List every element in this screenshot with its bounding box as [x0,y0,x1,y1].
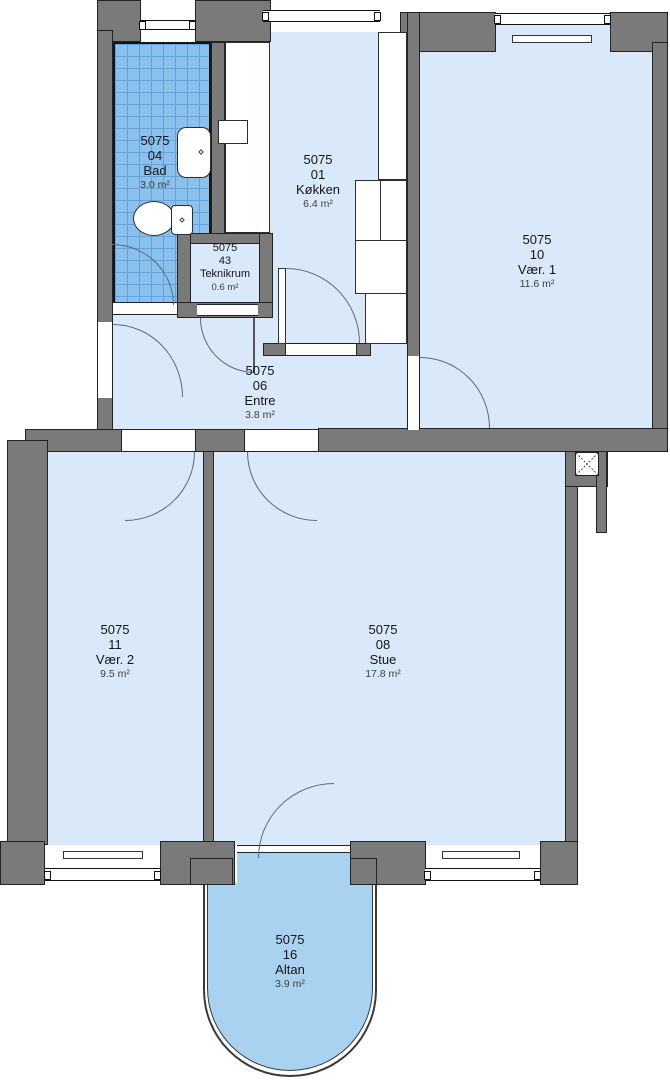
wall-right-lower [565,451,578,885]
room-label-stue: 507508 Stue17.8 m² [323,622,443,682]
window-vaer2 [45,868,160,881]
room-label-vaer1: 507510 Vær. 111.6 m² [477,232,597,292]
toilet-bowl-symbol [133,201,175,236]
kitchen-counter-right-1 [378,32,407,180]
wall-mid-band-center [195,429,245,452]
pier-bottom-right [540,841,578,885]
wall-kitchen-bottom-right [356,343,371,356]
door-leaf-kokken [278,268,286,344]
wall-left-entre [97,396,113,431]
room-label-kokken: 507501 Køkken6.4 m² [258,152,378,212]
balcony-pier-left [190,858,233,885]
vaer2-door-opening [122,429,195,452]
window-sill-vaer2 [63,851,143,859]
window-vaer1 [495,13,610,25]
balcony-pier-right [350,858,377,885]
kitchen-counter-right-4 [365,293,407,344]
vaer1-door-frame [407,356,420,430]
wall-top-mid [195,0,271,42]
window-bad [140,20,195,30]
wall-mid-band-right [318,428,668,452]
room-label-teknikrum: 507543 Teknikrum0.6 m² [177,242,273,294]
kitchen-counter-divider [380,180,381,241]
column-x-symbol [575,452,599,476]
kitchen-counter-right-3 [355,240,407,294]
wall-left-lower [7,440,48,845]
room-label-vaer2: 507511 Vær. 29.5 m² [55,622,175,682]
entrance-door-frame [97,322,113,398]
kokken-door-opening [286,343,356,356]
window-sill-vaer1 [512,35,592,43]
room-label-altan: 507516 Altan3.9 m² [230,932,350,992]
wall-right-upper [652,42,668,431]
window-kokken [263,10,380,22]
room-label-entre: 507506 Entre3.8 m² [200,363,320,423]
window-sill-stue [442,851,520,859]
wall-kitchen-bottom-left [263,343,286,356]
pier-bottom-far-left [0,841,45,885]
window-stue [425,868,540,881]
stue-door-opening [245,429,318,452]
room-label-bad: 507504 Bad3.0 m² [109,133,201,193]
wall-vaer2-stue-divider [203,451,214,845]
teknikrum-door-opening [197,304,258,316]
floor-plan: 507504 Bad3.0 m² 507501 Køkken6.4 m² 507… [0,0,670,1080]
wall-kitchen-vaer1 [407,12,420,357]
counter-box-left [218,120,248,144]
